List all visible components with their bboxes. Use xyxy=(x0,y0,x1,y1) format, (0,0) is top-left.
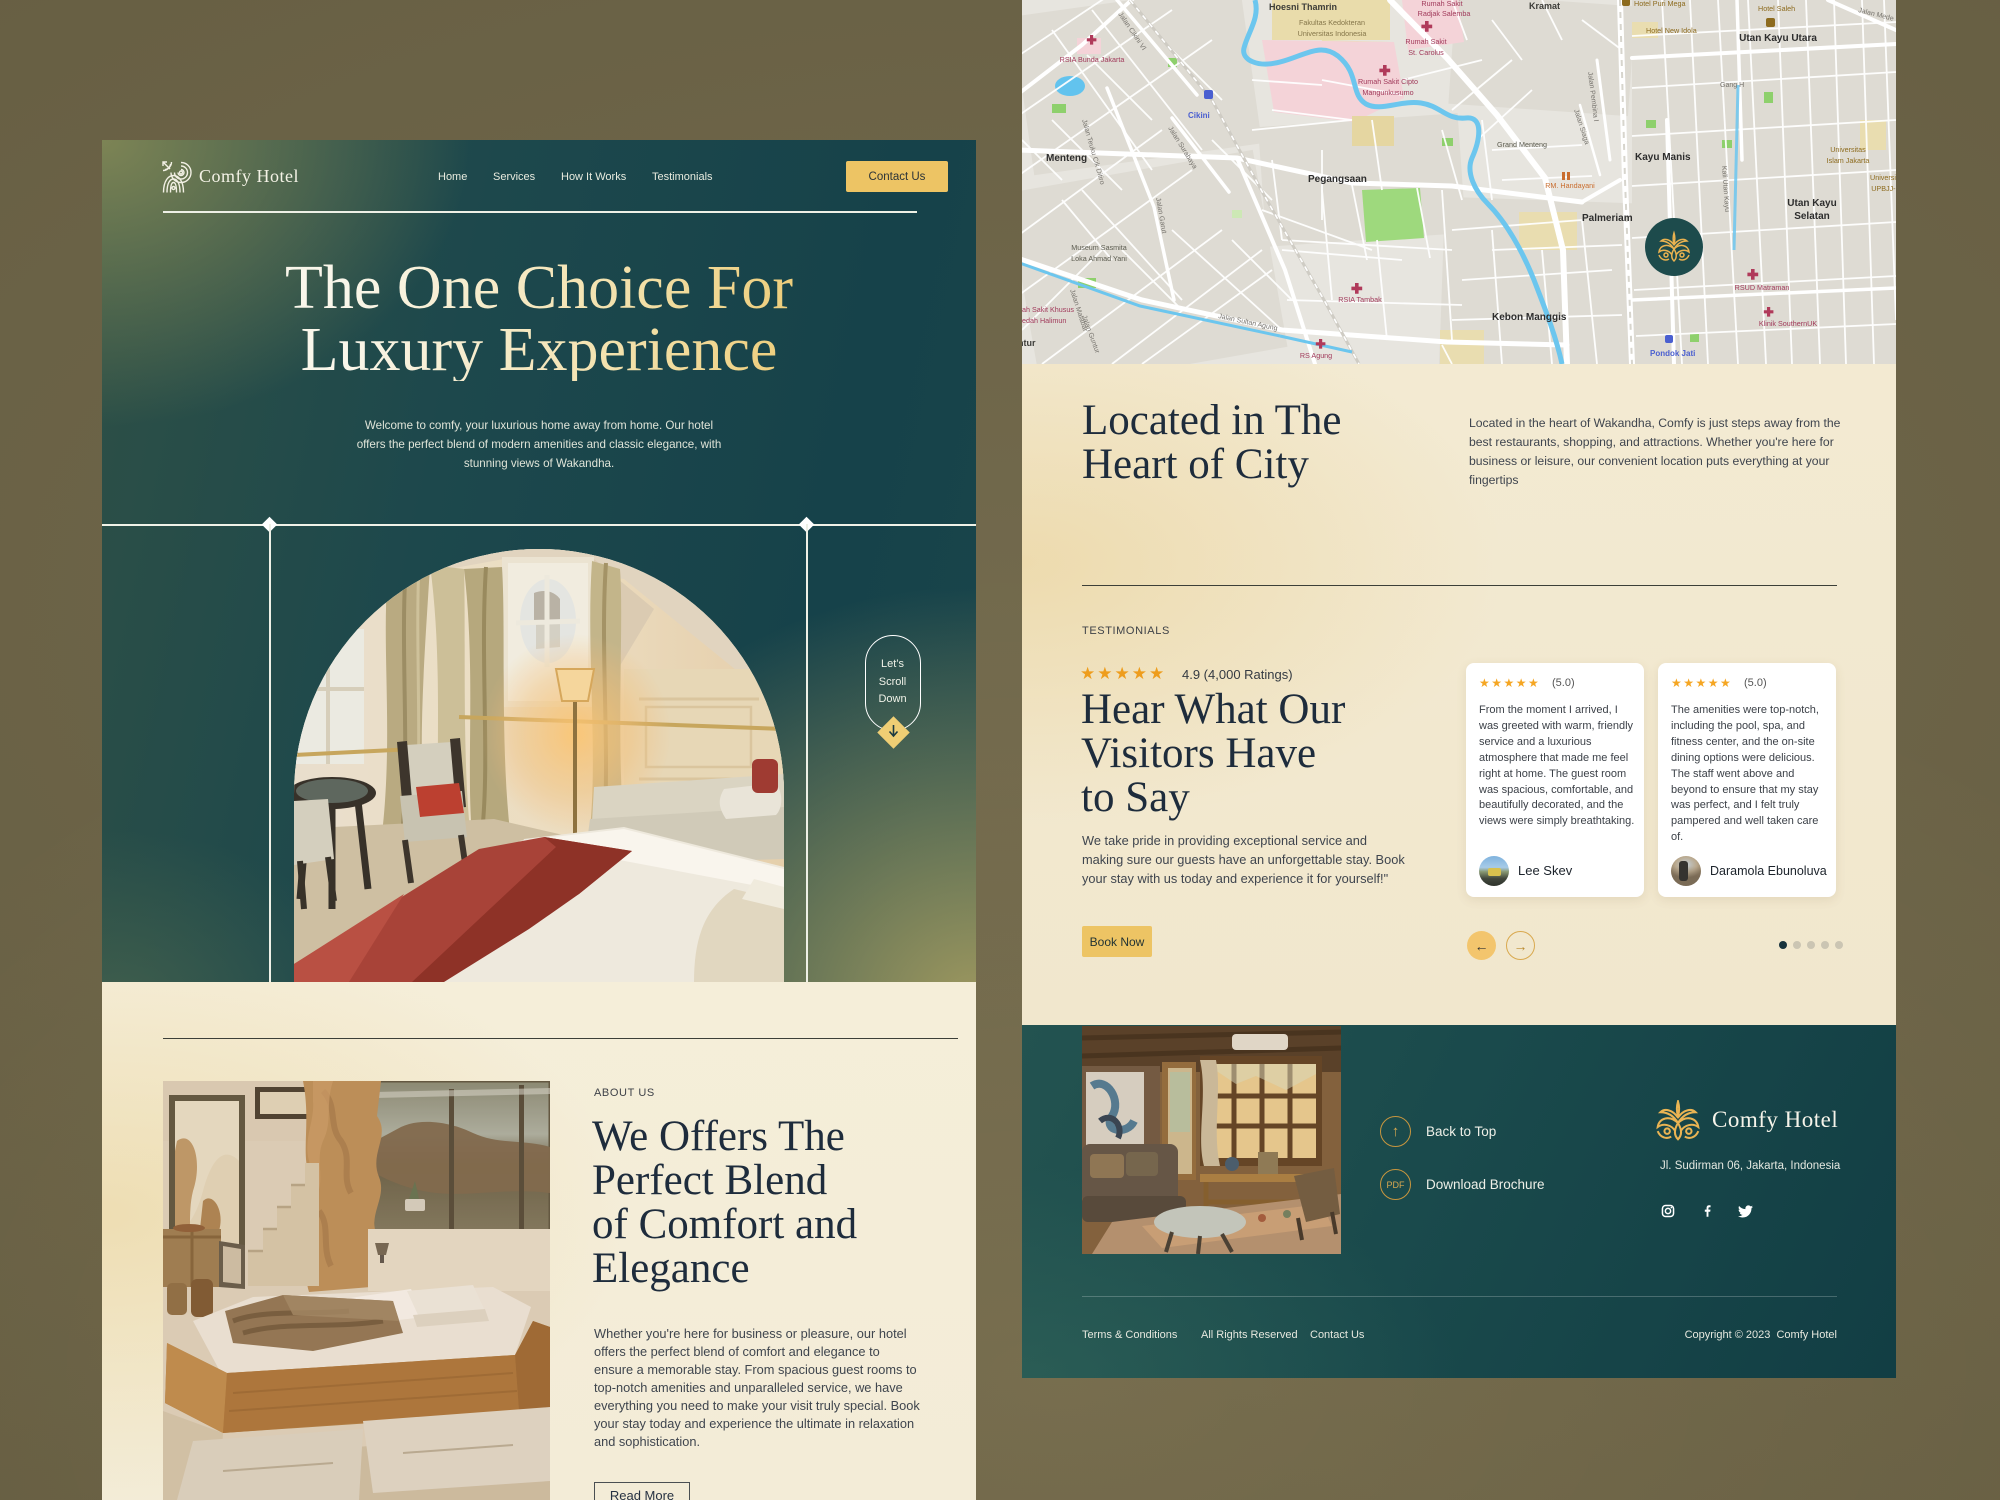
svg-text:St. Carolus: St. Carolus xyxy=(1408,48,1444,57)
svg-text:Klinik SouthernUK: Klinik SouthernUK xyxy=(1759,319,1818,328)
svg-text:Hotel Puri Mega: Hotel Puri Mega xyxy=(1634,0,1686,8)
svg-text:Loka Ahmad Yani: Loka Ahmad Yani xyxy=(1071,254,1127,263)
svg-text:Cikini: Cikini xyxy=(1188,111,1210,120)
svg-text:UPBJJ-U: UPBJJ-U xyxy=(1871,184,1896,193)
svg-text:RM. Handayani: RM. Handayani xyxy=(1545,181,1595,190)
svg-text:Hotel Saleh: Hotel Saleh xyxy=(1758,4,1795,13)
svg-text:Radjak Salemba: Radjak Salemba xyxy=(1418,9,1471,18)
svg-text:Rumah Sakit Cipto: Rumah Sakit Cipto xyxy=(1358,77,1418,86)
svg-text:Museum Sasmita: Museum Sasmita xyxy=(1071,243,1127,252)
svg-text:ah Sakit Khusus: ah Sakit Khusus xyxy=(1022,305,1074,314)
svg-text:Fakultas Kedokteran: Fakultas Kedokteran xyxy=(1299,18,1365,27)
svg-text:Mangunkusumo: Mangunkusumo xyxy=(1362,88,1413,97)
svg-text:Universitas Indonesia: Universitas Indonesia xyxy=(1298,29,1367,38)
svg-text:Pondok Jati: Pondok Jati xyxy=(1650,349,1695,358)
svg-text:Rumah Sakit: Rumah Sakit xyxy=(1421,0,1462,8)
svg-text:Universitas: Universitas xyxy=(1830,145,1866,154)
svg-text:Utan Kayu: Utan Kayu xyxy=(1787,198,1836,209)
svg-text:Pegangsaan: Pegangsaan xyxy=(1308,174,1367,185)
svg-text:Menteng: Menteng xyxy=(1046,153,1087,164)
svg-text:Hoesni Thamrin: Hoesni Thamrin xyxy=(1269,2,1337,12)
svg-text:edah Halimun: edah Halimun xyxy=(1022,316,1066,325)
svg-text:RSIA Tambak: RSIA Tambak xyxy=(1338,295,1382,304)
svg-text:Grand Menteng: Grand Menteng xyxy=(1497,140,1547,149)
svg-text:RSUD Matraman: RSUD Matraman xyxy=(1735,283,1790,292)
svg-text:Kebon Manggis: Kebon Manggis xyxy=(1492,312,1567,323)
svg-text:Utan Kayu Utara: Utan Kayu Utara xyxy=(1739,33,1817,44)
svg-text:ntur: ntur xyxy=(1022,338,1036,348)
svg-text:Selatan: Selatan xyxy=(1794,211,1830,222)
svg-text:RS Agung: RS Agung xyxy=(1300,351,1332,360)
svg-text:Islam Jakarta: Islam Jakarta xyxy=(1827,156,1870,165)
svg-text:Palmeriam: Palmeriam xyxy=(1582,213,1633,224)
svg-text:Kayu Manis: Kayu Manis xyxy=(1635,152,1691,163)
svg-text:Hotel New Idola: Hotel New Idola xyxy=(1646,26,1697,35)
svg-text:Universita: Universita xyxy=(1870,173,1896,182)
svg-text:RSIA Bunda Jakarta: RSIA Bunda Jakarta xyxy=(1060,55,1125,64)
svg-text:Gang H: Gang H xyxy=(1720,82,1744,89)
svg-text:Rumah Sakit: Rumah Sakit xyxy=(1405,37,1446,46)
svg-text:Kramat: Kramat xyxy=(1529,1,1560,11)
